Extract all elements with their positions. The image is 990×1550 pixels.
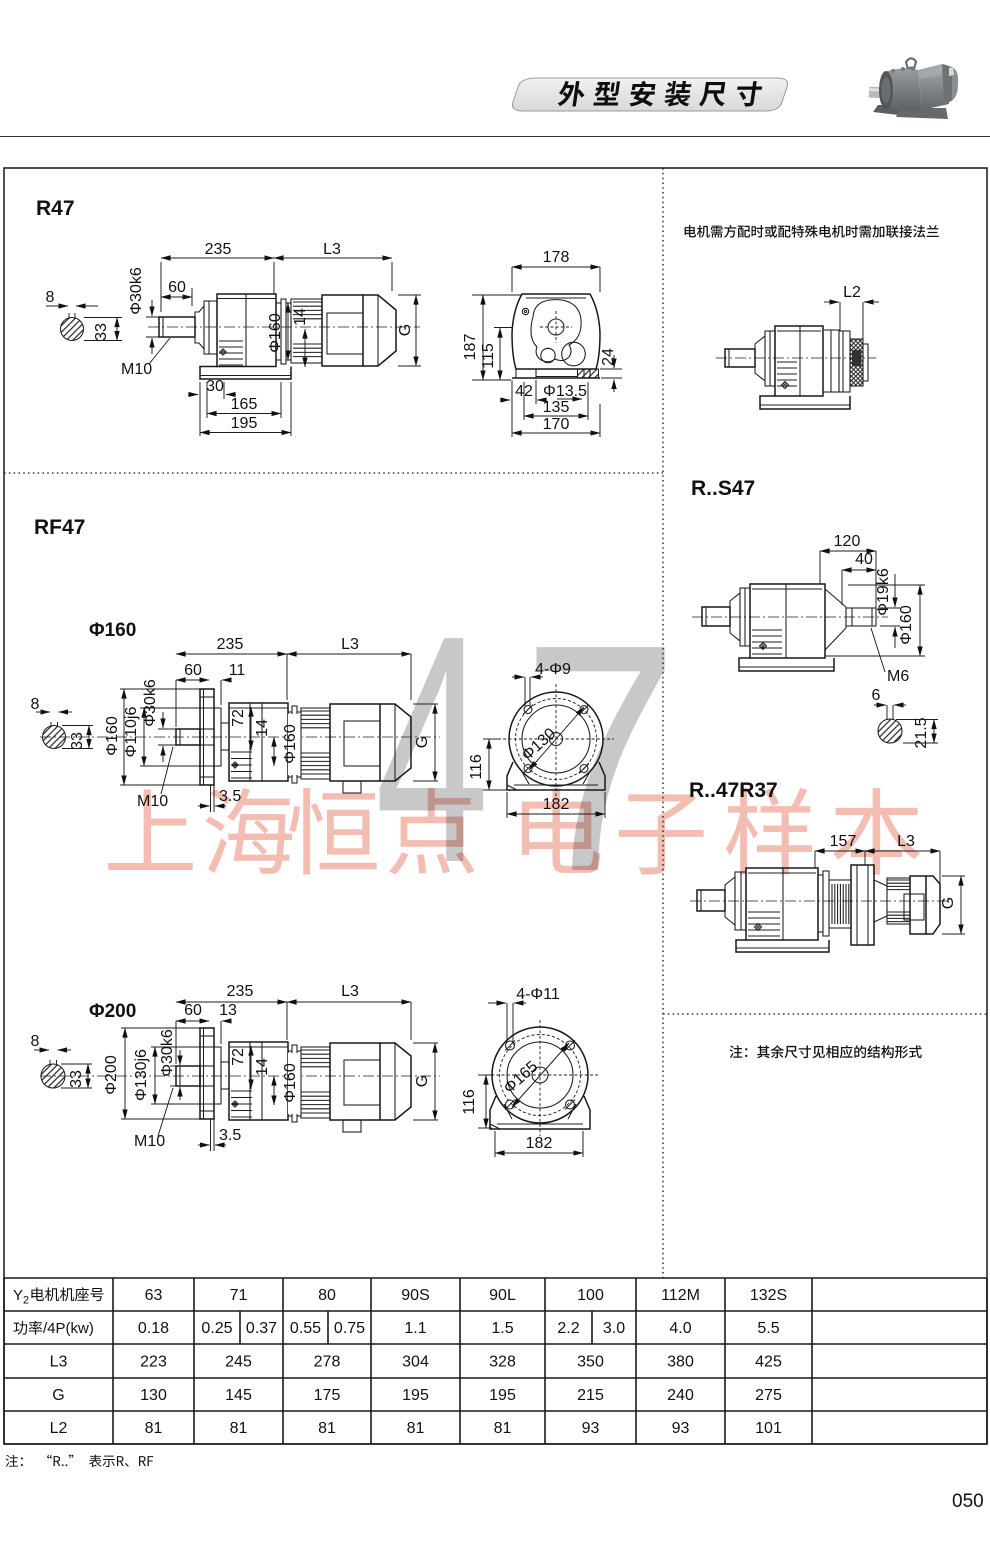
svg-text:M10: M10 [121,361,152,378]
svg-text:0.75: 0.75 [334,1320,365,1337]
svg-text:170: 170 [543,416,570,433]
svg-text:328: 328 [489,1354,516,1371]
svg-text:278: 278 [314,1354,341,1371]
svg-text:0.25: 0.25 [201,1320,232,1337]
svg-text:G: G [940,897,957,909]
svg-text:14: 14 [292,308,309,326]
svg-text:60: 60 [184,662,202,679]
svg-text:90L: 90L [489,1287,516,1304]
svg-text:304: 304 [402,1354,429,1371]
svg-text:60: 60 [168,279,186,296]
svg-text:Φ160: Φ160 [898,605,915,645]
svg-text:L2: L2 [50,1420,68,1437]
svg-text:223: 223 [140,1354,167,1371]
svg-text:L3: L3 [897,833,915,850]
svg-text:6: 6 [872,687,881,704]
svg-text:3.5: 3.5 [219,1127,241,1144]
svg-text:G: G [397,324,414,336]
svg-text:7: 7 [522,578,679,940]
svg-text:Φ110j6: Φ110j6 [123,707,140,758]
svg-text:81: 81 [230,1420,248,1437]
svg-text:4.0: 4.0 [669,1320,691,1337]
svg-text:72: 72 [230,1048,247,1066]
svg-text:81: 81 [318,1420,336,1437]
svg-text:Φ13.5: Φ13.5 [543,383,587,400]
svg-text:M6: M6 [887,668,909,685]
svg-text:81: 81 [407,1420,425,1437]
svg-text:175: 175 [314,1387,341,1404]
svg-text:Y2: Y2 [13,1287,29,1307]
svg-text:132S: 132S [750,1287,787,1304]
svg-text:93: 93 [672,1420,690,1437]
svg-text:Φ30k6: Φ30k6 [128,267,145,315]
svg-text:L3: L3 [341,636,359,653]
svg-text:116: 116 [461,1089,478,1115]
svg-text:Φ130j6: Φ130j6 [133,1049,150,1101]
svg-text:215: 215 [577,1387,604,1404]
svg-text:63: 63 [145,1287,163,1304]
svg-text:380: 380 [667,1354,694,1371]
svg-text:5.5: 5.5 [757,1320,779,1337]
svg-text:Φ19k6: Φ19k6 [875,568,892,616]
svg-text:0.18: 0.18 [138,1320,169,1337]
svg-text:L2: L2 [843,284,861,301]
svg-text:182: 182 [526,1135,553,1152]
svg-text:L3: L3 [323,241,341,258]
svg-text:G: G [52,1387,64,1404]
svg-text:187: 187 [462,334,479,361]
svg-text:100: 100 [577,1287,604,1304]
svg-text:8: 8 [31,1033,40,1050]
svg-text:195: 195 [231,415,258,432]
svg-text:L3: L3 [341,983,359,1000]
svg-text:182: 182 [543,796,570,813]
svg-text:Φ160: Φ160 [104,716,121,756]
svg-text:Φ30k6: Φ30k6 [159,1029,176,1077]
svg-text:8: 8 [31,696,40,713]
svg-text:1.5: 1.5 [491,1320,513,1337]
svg-text:120: 120 [834,533,861,550]
svg-text:/4P(kw): /4P(kw) [43,1320,94,1337]
svg-text:1.1: 1.1 [404,1320,426,1337]
svg-text:14: 14 [254,1058,271,1076]
svg-text:115: 115 [480,343,497,369]
svg-text:2.2: 2.2 [557,1320,579,1337]
svg-text:112M: 112M [661,1287,700,1304]
svg-text:81: 81 [145,1420,163,1437]
svg-text:Φ30k6: Φ30k6 [142,679,159,727]
svg-text:Φ200: Φ200 [103,1055,120,1095]
svg-text:33: 33 [69,732,86,750]
svg-text:235: 235 [205,241,232,258]
svg-text:135: 135 [543,399,570,416]
svg-text:350: 350 [577,1354,604,1371]
svg-text:81: 81 [494,1420,512,1437]
svg-text:4-Φ11: 4-Φ11 [516,986,560,1003]
svg-text:13: 13 [219,1002,237,1019]
svg-text:11: 11 [229,662,246,679]
svg-text:3.5: 3.5 [219,788,241,805]
svg-text:130: 130 [140,1387,167,1404]
svg-text:245: 245 [225,1354,252,1371]
svg-text:Φ160: Φ160 [282,1063,299,1103]
svg-text:90S: 90S [401,1287,429,1304]
svg-text:116: 116 [468,754,485,780]
svg-text:0.55: 0.55 [290,1320,321,1337]
svg-text:4: 4 [375,569,489,930]
svg-text:425: 425 [755,1354,782,1371]
svg-text:8: 8 [46,289,55,306]
svg-text:235: 235 [217,636,244,653]
svg-text:Φ160: Φ160 [282,724,299,764]
svg-text:165: 165 [231,396,258,413]
svg-text:71: 71 [230,1287,248,1304]
svg-text:145: 145 [225,1387,252,1404]
svg-text:M10: M10 [137,793,168,810]
svg-text:157: 157 [830,833,857,850]
svg-text:30: 30 [206,378,224,395]
svg-text:G: G [414,736,431,748]
svg-text:40: 40 [855,551,873,568]
svg-text:33: 33 [93,323,110,341]
svg-text:4-Φ9: 4-Φ9 [535,661,571,678]
svg-text:80: 80 [318,1287,336,1304]
svg-text:240: 240 [667,1387,694,1404]
svg-text:L3: L3 [50,1354,68,1371]
svg-text:21.5: 21.5 [913,717,930,748]
svg-text:235: 235 [227,983,254,1000]
svg-text:0.37: 0.37 [246,1320,277,1337]
svg-text:93: 93 [582,1420,600,1437]
svg-text:195: 195 [402,1387,429,1404]
svg-text:101: 101 [755,1420,782,1437]
svg-text:195: 195 [489,1387,516,1404]
svg-text:178: 178 [543,249,570,266]
svg-text:3.0: 3.0 [603,1320,625,1337]
svg-text:M10: M10 [134,1133,165,1150]
svg-text:60: 60 [184,1002,202,1019]
svg-text:G: G [414,1075,431,1087]
svg-text:14: 14 [254,719,271,737]
svg-text:275: 275 [755,1387,782,1404]
svg-text:72: 72 [230,709,247,727]
svg-text:Φ160: Φ160 [267,313,284,353]
svg-text:33: 33 [68,1070,85,1088]
